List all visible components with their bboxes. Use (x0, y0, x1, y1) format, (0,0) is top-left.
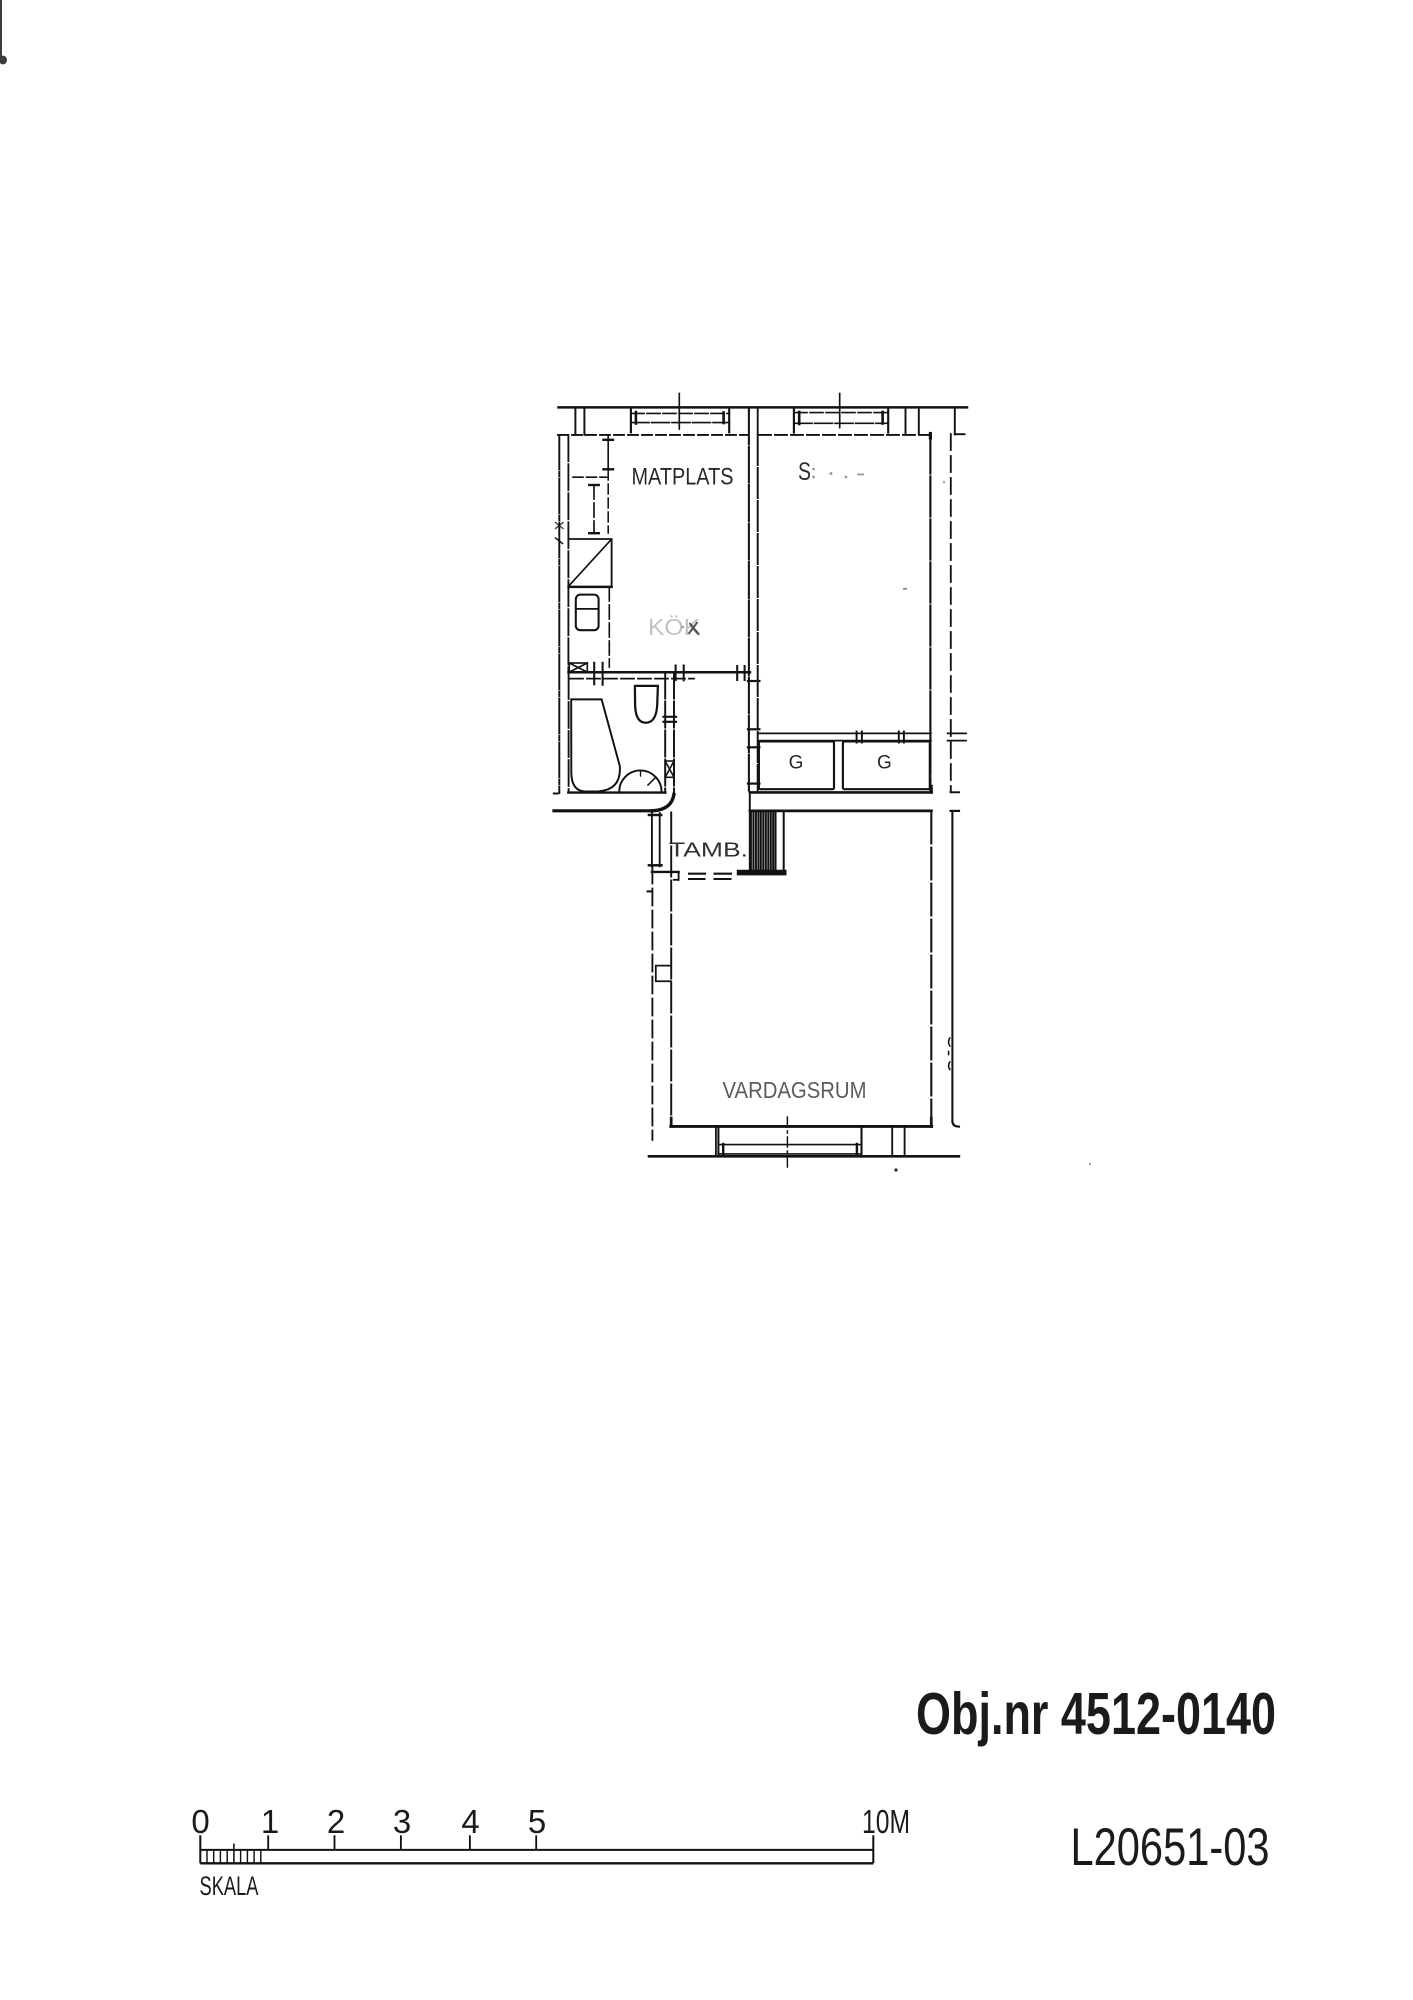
svg-text:SKALA: SKALA (200, 1871, 259, 1901)
svg-text:MATPLATS: MATPLATS (632, 464, 734, 491)
svg-text:VARDAGSRUM: VARDAGSRUM (723, 1077, 867, 1103)
svg-text:3: 3 (393, 1803, 411, 1840)
svg-text:4: 4 (461, 1803, 479, 1840)
svg-text:G: G (789, 752, 804, 773)
svg-text:5: 5 (528, 1803, 546, 1840)
svg-text:TAMB.: TAMB. (669, 839, 748, 862)
svg-text:S: S (798, 458, 811, 486)
svg-text:1: 1 (261, 1803, 279, 1840)
svg-text:2: 2 (327, 1803, 345, 1840)
svg-text:10M: 10M (862, 1803, 910, 1840)
svg-text:G: G (877, 752, 892, 773)
svg-text:Obj.nr 4512-0140: Obj.nr 4512-0140 (916, 1681, 1276, 1747)
svg-text:0: 0 (191, 1803, 209, 1840)
svg-text:L20651-03: L20651-03 (1071, 1818, 1270, 1877)
